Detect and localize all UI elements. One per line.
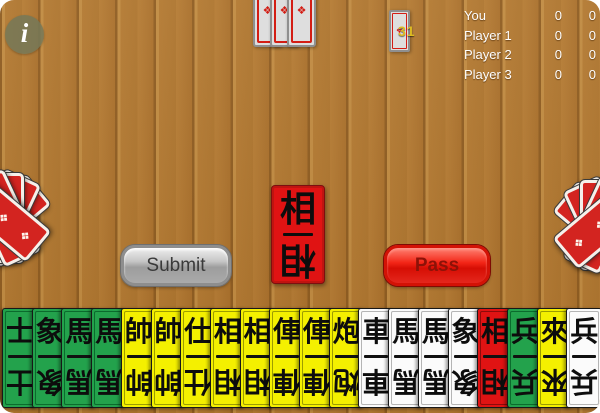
pass-button[interactable]: Pass — [384, 245, 490, 286]
card-character-inverted: 相 — [481, 359, 509, 404]
card-character-inverted: 帥 — [154, 359, 182, 404]
card-character-inverted: 仕 — [184, 359, 212, 404]
card-divider — [157, 355, 181, 358]
card-character-inverted: 馬 — [422, 359, 450, 404]
card-character-inverted: 俥 — [273, 359, 301, 404]
card-character: 象 — [451, 309, 479, 354]
player-score: 0 — [562, 67, 596, 82]
card-character-inverted: 帥 — [125, 359, 153, 404]
card-divider — [335, 355, 359, 358]
scoreboard: You00Player 100Player 200Player 300 — [464, 6, 596, 84]
card-character-inverted: 車 — [362, 359, 390, 404]
card-divider — [424, 355, 448, 358]
card-character: 相 — [244, 309, 272, 354]
card-divider — [38, 355, 62, 358]
player-name: You — [464, 8, 528, 23]
card-character-inverted: 來 — [541, 359, 569, 404]
card-divider — [454, 355, 478, 358]
deck-pile: ❖ 31 — [389, 10, 410, 52]
scoreboard-row: Player 100 — [464, 26, 596, 46]
game-table: i You00Player 100Player 200Player 300 ❖❖… — [0, 0, 600, 413]
player-score: 0 — [562, 47, 596, 62]
card-back: ❖ — [287, 0, 316, 47]
card-character: 士 — [6, 309, 34, 354]
card-divider — [127, 355, 151, 358]
player-score: 0 — [528, 67, 562, 82]
scoreboard-row: Player 200 — [464, 45, 596, 65]
card-character: 仕 — [184, 309, 212, 354]
card-divider — [275, 355, 299, 358]
submit-button[interactable]: Submit — [121, 245, 231, 286]
card-divider — [364, 355, 388, 358]
card-back-pattern-icon: ❖ — [291, 0, 312, 43]
card-character: 炮 — [333, 309, 361, 354]
card-character: 車 — [362, 309, 390, 354]
hand-card[interactable]: 兵兵 — [566, 308, 600, 408]
info-icon: i — [21, 20, 29, 47]
card-character: 俥 — [303, 309, 331, 354]
card-divider — [216, 355, 240, 358]
opponent-hand-top: ❖❖❖ — [253, 0, 323, 50]
card-character: 俥 — [273, 309, 301, 354]
card-back-pattern-icon: ❖ — [17, 228, 33, 244]
card-character-inverted: 馬 — [95, 359, 123, 404]
card-divider — [67, 355, 91, 358]
player-score: 0 — [528, 47, 562, 62]
card-character: 帥 — [125, 309, 153, 354]
card-divider — [97, 355, 121, 358]
card-character: 帥 — [154, 309, 182, 354]
card-divider — [572, 355, 596, 358]
card-character: 兵 — [511, 309, 539, 354]
player-name: Player 3 — [464, 67, 528, 82]
card-character-inverted: 俥 — [303, 359, 331, 404]
card-character-inverted: 馬 — [392, 359, 420, 404]
scoreboard-row: You00 — [464, 6, 596, 26]
info-button[interactable]: i — [5, 15, 44, 54]
card-divider — [305, 355, 329, 358]
card-character-inverted: 士 — [6, 359, 34, 404]
card-character-inverted: 炮 — [333, 359, 361, 404]
deck-count: 31 — [398, 23, 416, 39]
card-back-pattern-icon: ❖ — [570, 235, 586, 251]
card-divider — [186, 355, 210, 358]
card-character: 兵 — [570, 309, 598, 354]
card-back-pattern-icon: ❖ — [0, 210, 12, 226]
player-name: Player 1 — [464, 28, 528, 43]
player-score: 0 — [528, 28, 562, 43]
card-character-inverted: 相 — [244, 359, 272, 404]
player-score: 0 — [562, 28, 596, 43]
card-divider — [513, 355, 537, 358]
card-character-inverted: 相 — [214, 359, 242, 404]
card-divider — [246, 355, 270, 358]
card-character: 馬 — [422, 309, 450, 354]
card-character-inverted: 象 — [451, 359, 479, 404]
player-score: 0 — [528, 8, 562, 23]
played-card: 相 相 — [271, 185, 325, 284]
card-character: 馬 — [95, 309, 123, 354]
card-character: 馬 — [392, 309, 420, 354]
card-character: 來 — [541, 309, 569, 354]
card-character-inverted: 象 — [36, 359, 64, 404]
card-character-inverted: 兵 — [570, 359, 598, 404]
player-hand: 士士象象馬馬馬馬帥帥帥帥仕仕相相相相俥俥俥俥炮炮車車馬馬馬馬象象相相兵兵來來兵兵 — [0, 308, 600, 408]
played-card-character: 相 — [280, 186, 316, 232]
card-character: 相 — [481, 309, 509, 354]
played-card-character-inverted: 相 — [280, 237, 316, 283]
card-character-inverted: 兵 — [511, 359, 539, 404]
card-character: 相 — [214, 309, 242, 354]
player-score: 0 — [562, 8, 596, 23]
card-character: 馬 — [65, 309, 93, 354]
card-back-pattern-icon: ❖ — [592, 217, 600, 233]
card-divider — [283, 233, 313, 236]
scoreboard-row: Player 300 — [464, 65, 596, 85]
card-divider — [543, 355, 567, 358]
card-divider — [483, 355, 507, 358]
card-divider — [394, 355, 418, 358]
card-character-inverted: 馬 — [65, 359, 93, 404]
card-divider — [8, 355, 32, 358]
player-name: Player 2 — [464, 47, 528, 62]
card-character: 象 — [36, 309, 64, 354]
